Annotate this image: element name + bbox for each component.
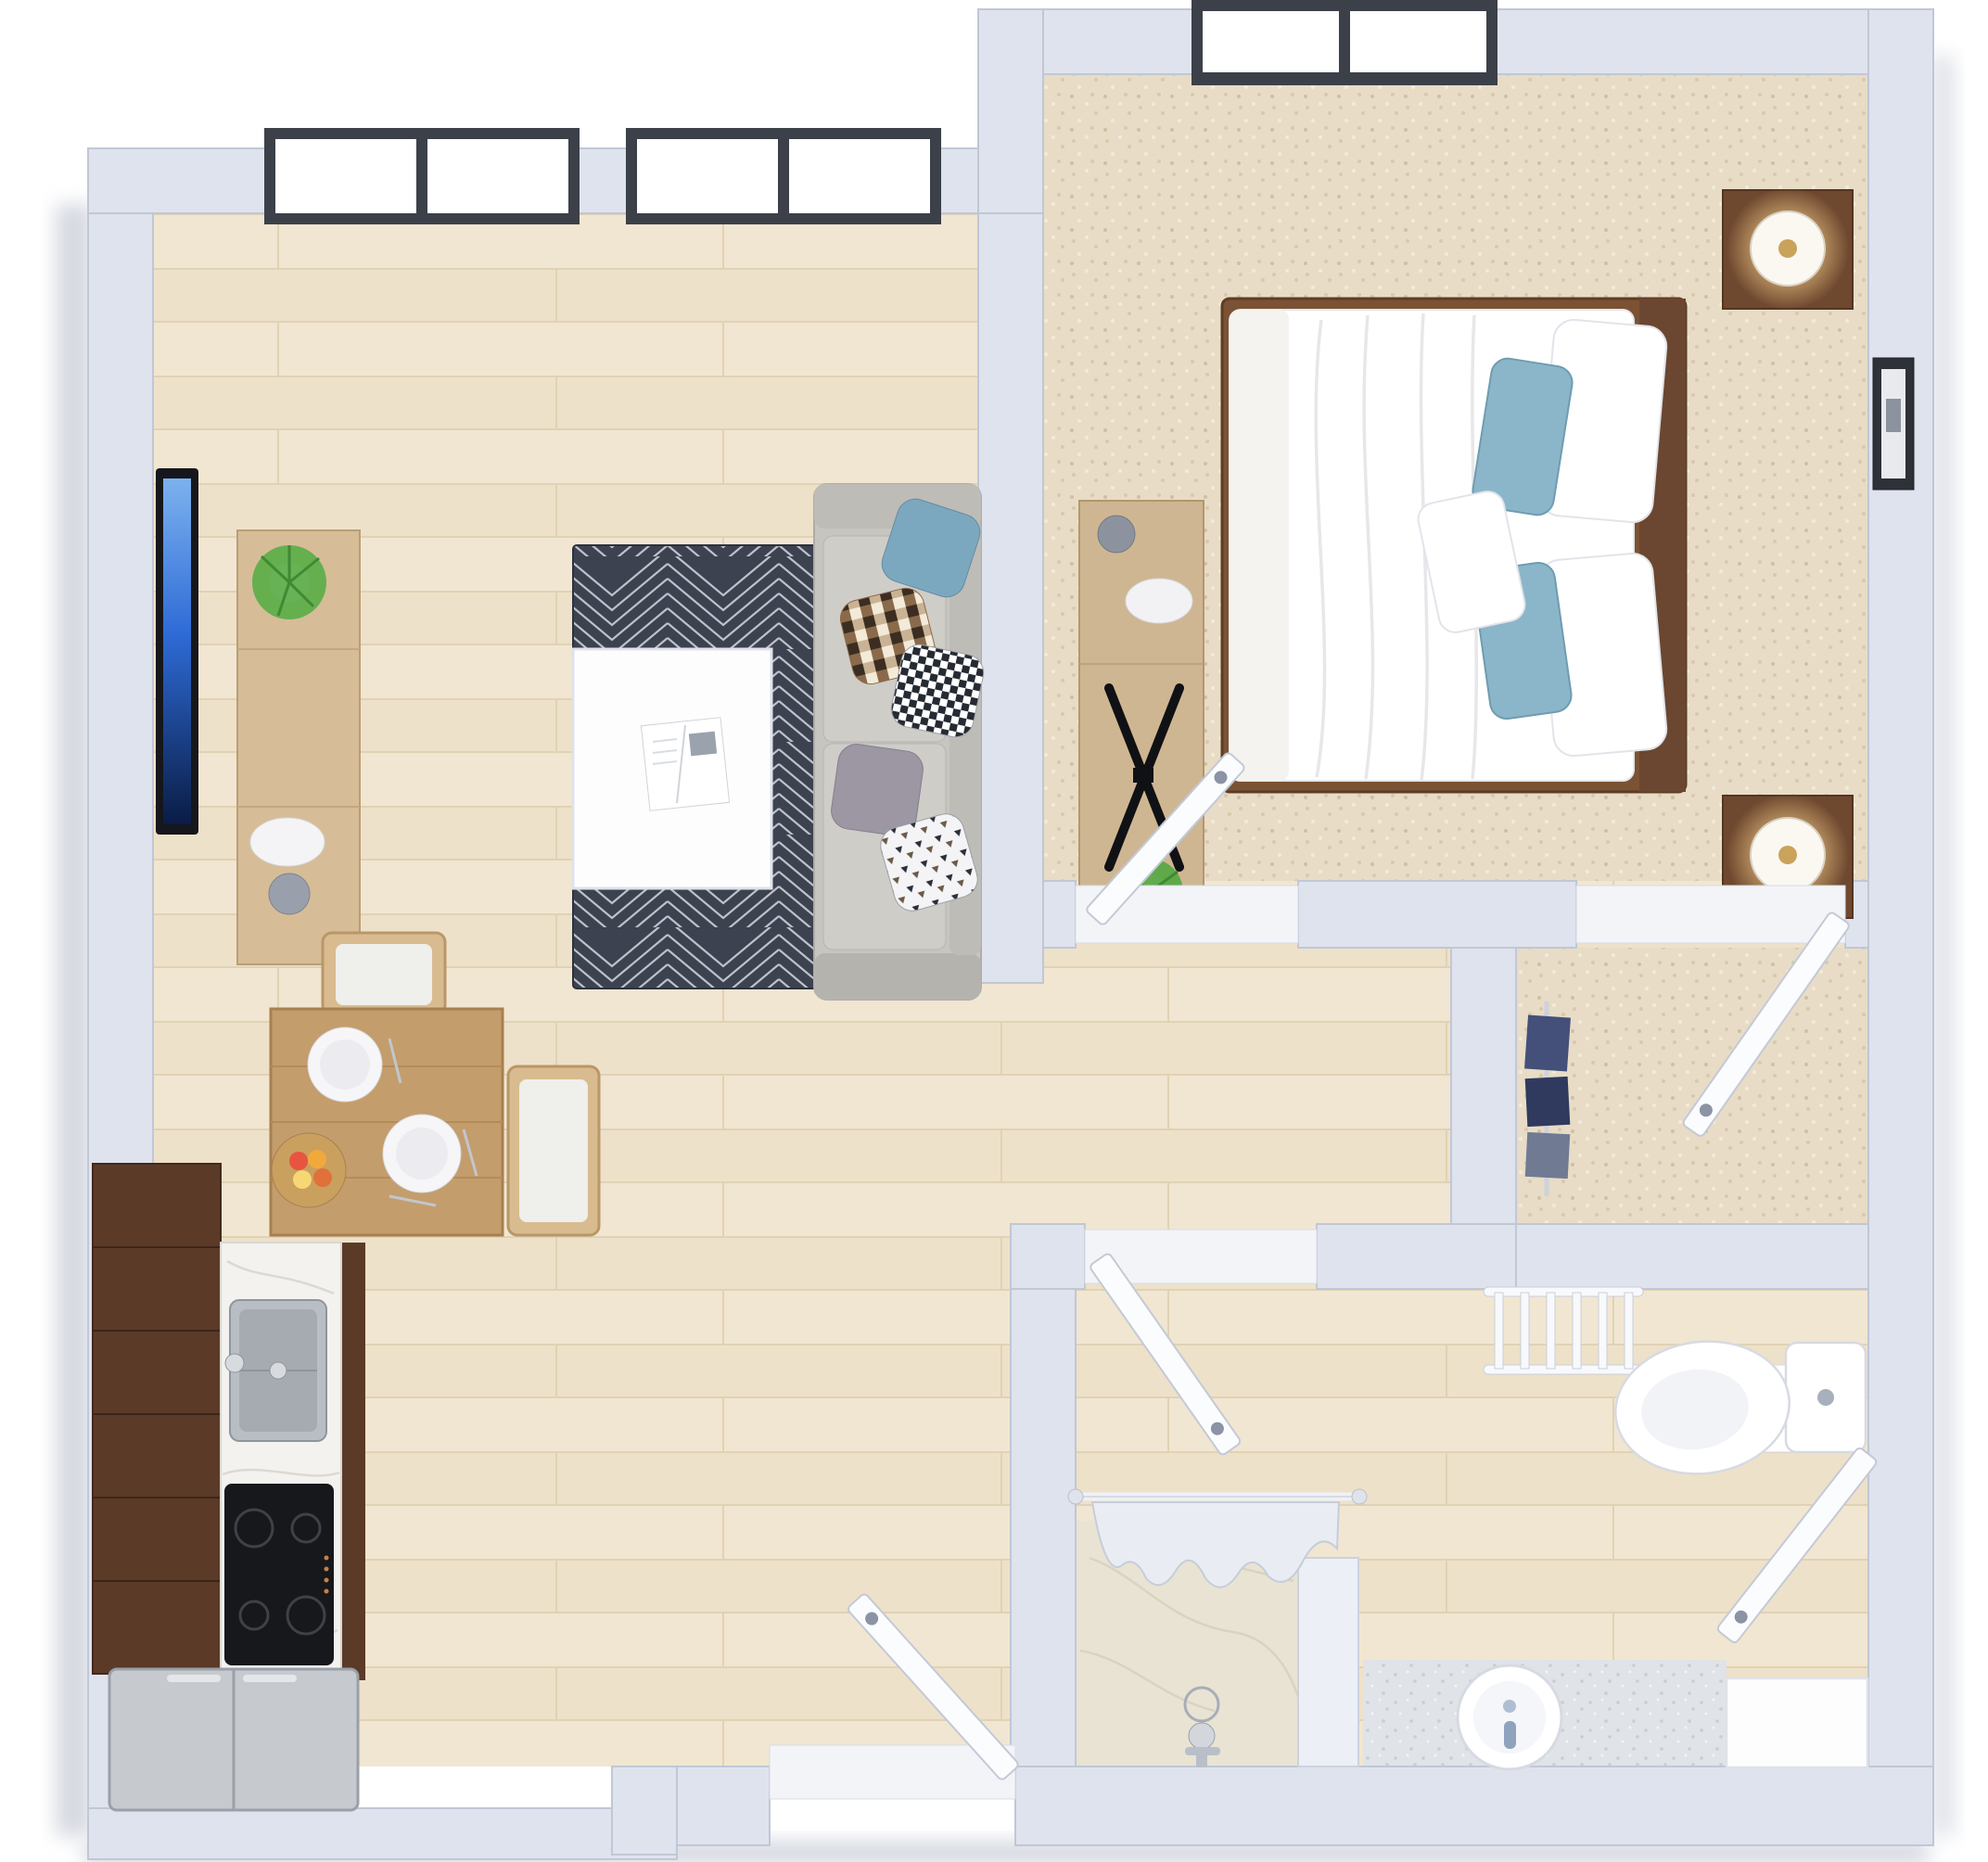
coffee-table [573, 649, 771, 888]
shower-partition-wall [1298, 1558, 1358, 1766]
sink-drain [1503, 1700, 1516, 1713]
sink-faucet [225, 1354, 244, 1372]
wall-bottom-right [1015, 1766, 1933, 1845]
wall-step [612, 1766, 677, 1855]
decor-vase [1098, 516, 1135, 553]
room-closet [1524, 1001, 1571, 1196]
kitchen-sink [225, 1300, 326, 1441]
floor-plan-render [0, 0, 1988, 1862]
room-kitchen [93, 1164, 365, 1810]
cooktop [224, 1484, 334, 1665]
nightstand-top [1723, 187, 1853, 310]
living-window-2 [626, 128, 941, 224]
wall-bedroom-bottom-a [1043, 881, 1076, 948]
fruit-bowl [272, 1133, 346, 1207]
wall-tv [156, 468, 198, 835]
wall-bottom-left [88, 1808, 677, 1859]
sectional-sofa [814, 484, 987, 1000]
wall-bath-top-a [1011, 1224, 1085, 1289]
wall-bedroom-bottom-b [1298, 881, 1576, 948]
dining-table [271, 1009, 503, 1235]
vanity [1458, 1665, 1561, 1769]
kitchen-counter [221, 1243, 341, 1680]
hanging-clothes [1524, 1014, 1571, 1071]
wall-connector [978, 9, 1043, 213]
closet-door-threshold [1576, 886, 1845, 943]
storage-cabinet [1727, 1678, 1867, 1767]
bed [1222, 299, 1686, 792]
tv-console [237, 530, 360, 964]
wall-art [1873, 358, 1914, 490]
sink-faucet [1504, 1721, 1516, 1749]
wall-bath-top-b [1317, 1224, 1516, 1289]
sink-drain [270, 1362, 287, 1379]
pillow-checker-bw [888, 642, 988, 741]
decor-vase [269, 874, 310, 914]
flush-button [1817, 1389, 1834, 1406]
refrigerator [109, 1669, 358, 1810]
wall-bath-left [1011, 1289, 1076, 1766]
dining-chair-top [323, 933, 445, 1014]
decor-plate [250, 818, 325, 866]
hanging-clothes [1525, 1077, 1571, 1127]
decor-plate [1126, 579, 1192, 623]
wall-right [1868, 9, 1933, 1845]
hanging-clothes [1525, 1132, 1570, 1179]
dining-chair-right [508, 1066, 599, 1235]
bedroom-window [1192, 0, 1497, 85]
magazine [641, 718, 729, 810]
living-window-1 [264, 128, 580, 224]
wall-living-bedroom [978, 213, 1043, 983]
potted-plant [252, 545, 326, 619]
floor-plan-svg [0, 0, 1988, 1862]
closet-carpet [1516, 948, 1868, 1224]
